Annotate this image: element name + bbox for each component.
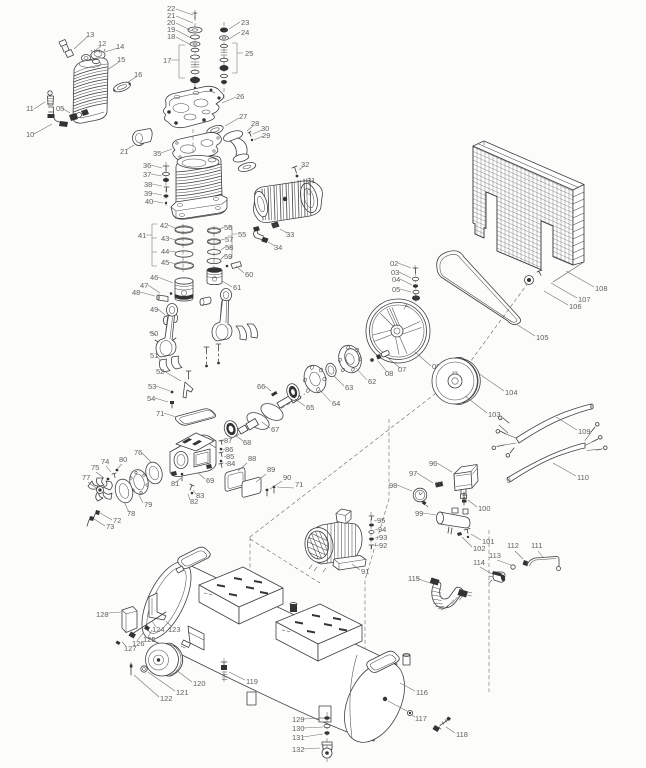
- svg-text:02: 02: [390, 259, 398, 268]
- svg-text:47: 47: [140, 281, 148, 290]
- svg-text:89: 89: [267, 465, 275, 474]
- svg-text:90: 90: [283, 473, 291, 482]
- svg-text:97: 97: [409, 469, 417, 478]
- svg-text:98: 98: [389, 481, 397, 490]
- svg-text:07: 07: [398, 365, 406, 374]
- svg-text:87: 87: [224, 436, 232, 445]
- svg-text:15: 15: [117, 55, 125, 64]
- svg-text:100: 100: [478, 504, 491, 513]
- svg-text:45: 45: [161, 258, 169, 267]
- svg-text:49: 49: [150, 305, 158, 314]
- svg-text:92: 92: [379, 541, 387, 550]
- svg-text:31: 31: [307, 176, 315, 185]
- svg-text:50: 50: [150, 329, 158, 338]
- svg-text:119: 119: [246, 677, 258, 686]
- svg-text:16: 16: [134, 70, 142, 79]
- svg-text:132: 132: [292, 745, 305, 754]
- svg-text:79: 79: [144, 500, 152, 509]
- svg-text:105: 105: [536, 333, 549, 342]
- svg-text:14: 14: [116, 42, 124, 51]
- svg-text:120: 120: [193, 679, 206, 688]
- svg-text:75: 75: [91, 463, 99, 472]
- svg-text:104: 104: [505, 388, 518, 397]
- svg-text:84: 84: [227, 459, 235, 468]
- svg-text:109: 109: [578, 427, 591, 436]
- svg-text:131: 131: [292, 733, 305, 742]
- svg-text:128: 128: [96, 610, 109, 619]
- svg-text:32: 32: [301, 160, 309, 169]
- svg-text:69: 69: [206, 476, 214, 485]
- svg-text:25: 25: [245, 49, 253, 58]
- svg-text:71: 71: [295, 480, 303, 489]
- svg-text:127: 127: [124, 644, 137, 653]
- svg-text:95: 95: [377, 516, 385, 525]
- svg-text:121: 121: [176, 688, 189, 697]
- svg-text:73: 73: [106, 522, 114, 531]
- svg-text:112: 112: [507, 541, 519, 550]
- svg-text:123: 123: [168, 625, 181, 634]
- svg-text:42: 42: [160, 221, 168, 230]
- svg-text:21: 21: [120, 147, 128, 156]
- svg-text:13: 13: [86, 30, 94, 39]
- svg-text:43: 43: [161, 234, 169, 243]
- svg-text:66: 66: [257, 382, 265, 391]
- svg-text:18: 18: [167, 32, 175, 41]
- svg-text:48: 48: [132, 288, 140, 297]
- svg-text:58: 58: [225, 243, 233, 252]
- svg-text:130: 130: [292, 724, 305, 733]
- svg-text:41: 41: [138, 231, 146, 240]
- svg-text:33: 33: [286, 230, 294, 239]
- svg-text:106: 106: [569, 302, 582, 311]
- svg-text:37: 37: [143, 170, 151, 179]
- svg-text:99: 99: [415, 509, 423, 518]
- svg-text:80: 80: [119, 455, 127, 464]
- svg-text:35: 35: [153, 149, 161, 158]
- svg-text:102: 102: [473, 544, 486, 553]
- svg-text:129: 129: [292, 715, 305, 724]
- svg-text:17: 17: [163, 56, 171, 65]
- svg-text:68: 68: [243, 438, 251, 447]
- svg-text:96: 96: [429, 459, 437, 468]
- svg-text:125: 125: [143, 635, 156, 644]
- svg-text:74: 74: [101, 457, 109, 466]
- svg-text:29: 29: [262, 131, 270, 140]
- svg-text:54: 54: [147, 394, 155, 403]
- svg-text:124: 124: [152, 625, 165, 634]
- svg-text:46: 46: [150, 273, 158, 282]
- svg-text:05: 05: [56, 104, 64, 113]
- svg-text:114: 114: [473, 558, 485, 567]
- svg-text:77: 77: [82, 473, 90, 482]
- svg-text:91: 91: [361, 567, 369, 576]
- svg-text:76: 76: [134, 448, 142, 457]
- svg-text:53: 53: [148, 382, 156, 391]
- svg-text:38: 38: [144, 180, 152, 189]
- svg-text:12: 12: [98, 39, 106, 48]
- svg-text:110: 110: [577, 473, 589, 482]
- svg-text:67: 67: [271, 425, 279, 434]
- svg-text:55: 55: [238, 230, 246, 239]
- svg-text:56: 56: [224, 223, 232, 232]
- svg-text:24: 24: [241, 28, 249, 37]
- svg-text:71: 71: [156, 409, 164, 418]
- svg-text:118: 118: [456, 730, 468, 739]
- svg-text:61: 61: [233, 283, 241, 292]
- svg-text:64: 64: [332, 399, 340, 408]
- svg-text:111: 111: [531, 541, 542, 550]
- svg-text:40: 40: [145, 197, 153, 206]
- svg-text:11: 11: [26, 104, 34, 113]
- svg-text:04: 04: [392, 275, 400, 284]
- svg-text:82: 82: [190, 497, 198, 506]
- svg-text:08: 08: [385, 369, 393, 378]
- svg-text:34: 34: [274, 243, 282, 252]
- svg-text:27: 27: [239, 112, 247, 121]
- svg-text:51: 51: [150, 351, 158, 360]
- svg-text:65: 65: [306, 403, 314, 412]
- svg-text:59: 59: [224, 252, 232, 261]
- svg-text:108: 108: [595, 284, 608, 293]
- svg-text:05: 05: [392, 285, 400, 294]
- svg-text:62: 62: [368, 377, 376, 386]
- svg-text:10: 10: [26, 130, 34, 139]
- svg-text:28: 28: [251, 119, 259, 128]
- svg-text:88: 88: [248, 454, 256, 463]
- svg-text:117: 117: [415, 714, 427, 723]
- svg-text:44: 44: [161, 247, 169, 256]
- svg-text:116: 116: [416, 688, 428, 697]
- svg-text:26: 26: [236, 92, 244, 101]
- svg-text:36: 36: [143, 161, 151, 170]
- svg-text:63: 63: [345, 383, 353, 392]
- svg-text:60: 60: [245, 270, 253, 279]
- svg-text:52: 52: [156, 367, 164, 376]
- svg-text:23: 23: [241, 18, 249, 27]
- svg-text:122: 122: [160, 694, 173, 703]
- svg-text:113: 113: [489, 551, 501, 560]
